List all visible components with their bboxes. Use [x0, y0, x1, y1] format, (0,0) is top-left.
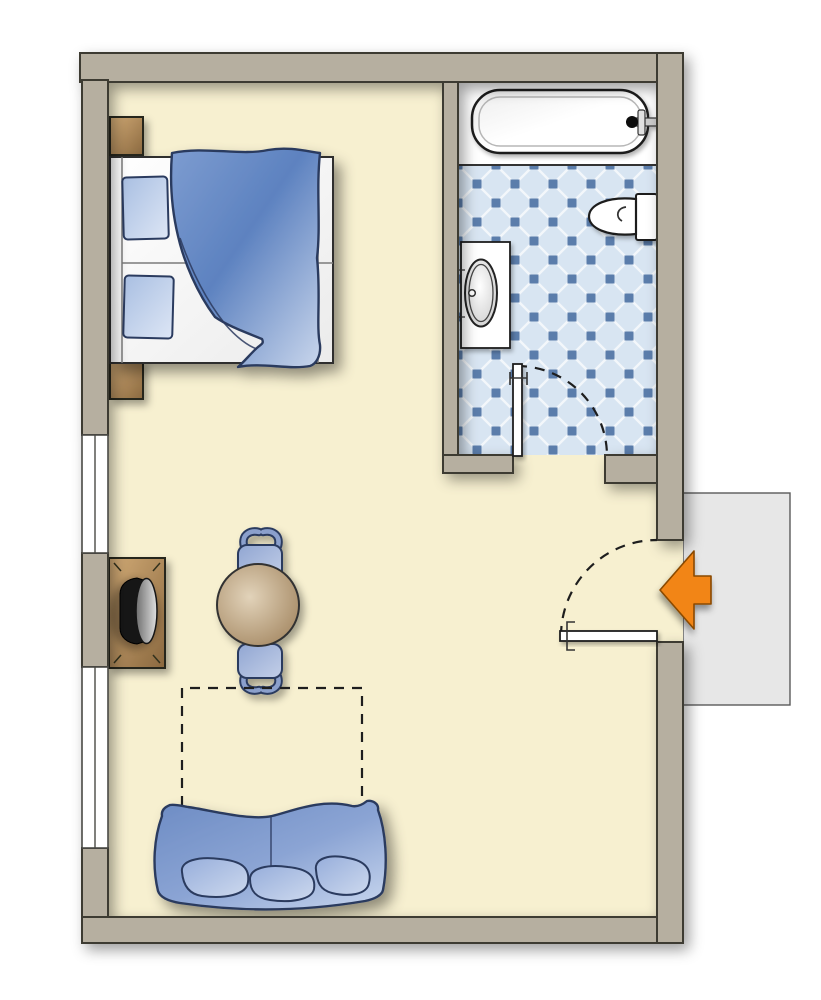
pillow-top: [122, 176, 169, 239]
nightstand-top: Nightstand: [110, 117, 143, 155]
sink-vanity: Washbasin vanity: [458, 242, 510, 348]
double-bed: Double bed with blue duvet and two pillo…: [110, 149, 333, 368]
round-table: [217, 564, 299, 646]
nightstand-bottom: Nightstand: [110, 361, 143, 399]
sofa-cushion-center: [250, 866, 314, 901]
tv-cabinet: TV cabinet with television: [109, 558, 165, 668]
floor-plan-canvas: Hallway outside entrance Bedroom / livin…: [0, 0, 821, 1000]
window-upper: Window: [82, 435, 108, 553]
bathtub: Bathtub with faucet: [472, 90, 657, 153]
sofa-cushion-left: [182, 858, 248, 897]
sofa-cushion-right: [316, 857, 370, 895]
sofa: Sofa with three cushions: [155, 801, 386, 910]
pillow-bottom: [123, 275, 174, 338]
window-lower: Window: [82, 667, 108, 848]
drain-icon: [469, 290, 476, 297]
floor-plan: Hallway outside entrance Bedroom / livin…: [0, 0, 821, 1000]
tv-screen: [136, 579, 157, 644]
